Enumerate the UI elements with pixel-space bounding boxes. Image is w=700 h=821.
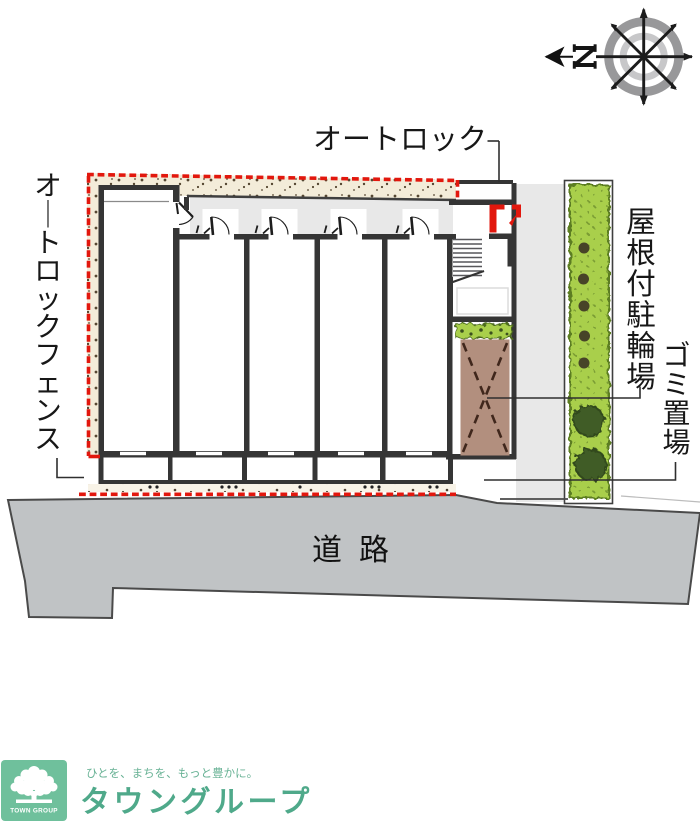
svg-text:ゴミ置場: ゴミ置場 [662,340,690,458]
svg-text:タウングループ: タウングループ [80,786,313,819]
svg-text:道路: 道路 [312,534,406,567]
svg-text:TOWN GROUP: TOWN GROUP [10,808,58,815]
svg-text:ひとを、まちを、もっと豊かに。: ひとを、まちを、もっと豊かに。 [86,767,258,780]
svg-text:オ｜トロックフェンス: オ｜トロックフェンス [34,170,62,454]
svg-text:屋根付駐輪場: 屋根付駐輪場 [626,206,656,394]
svg-text:オートロック: オートロック [313,124,487,156]
